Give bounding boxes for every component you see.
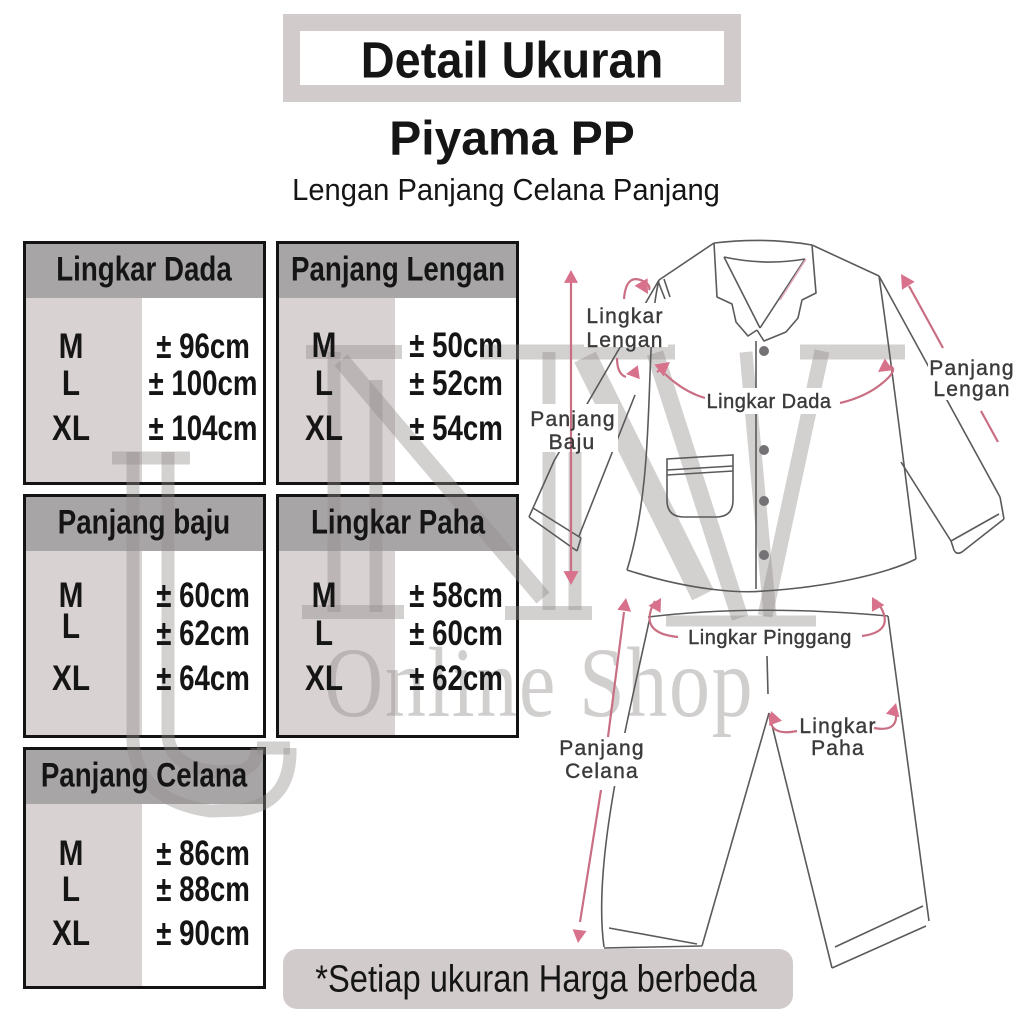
- svg-text:Lingkar Dada: Lingkar Dada: [707, 391, 832, 413]
- svg-text:Lingkar Pinggang: Lingkar Pinggang: [688, 627, 852, 649]
- svg-text:Panjang: Panjang: [929, 357, 1014, 380]
- svg-text:Baju: Baju: [549, 431, 596, 454]
- svg-text:Lingkar: Lingkar: [586, 305, 663, 328]
- svg-text:Panjang: Panjang: [530, 408, 615, 431]
- svg-text:Celana: Celana: [565, 760, 639, 783]
- svg-text:Paha: Paha: [811, 737, 865, 760]
- svg-text:Lengan: Lengan: [586, 329, 663, 352]
- svg-text:Lingkar: Lingkar: [799, 715, 876, 738]
- svg-text:Panjang: Panjang: [559, 737, 644, 760]
- svg-text:Lengan: Lengan: [933, 378, 1010, 401]
